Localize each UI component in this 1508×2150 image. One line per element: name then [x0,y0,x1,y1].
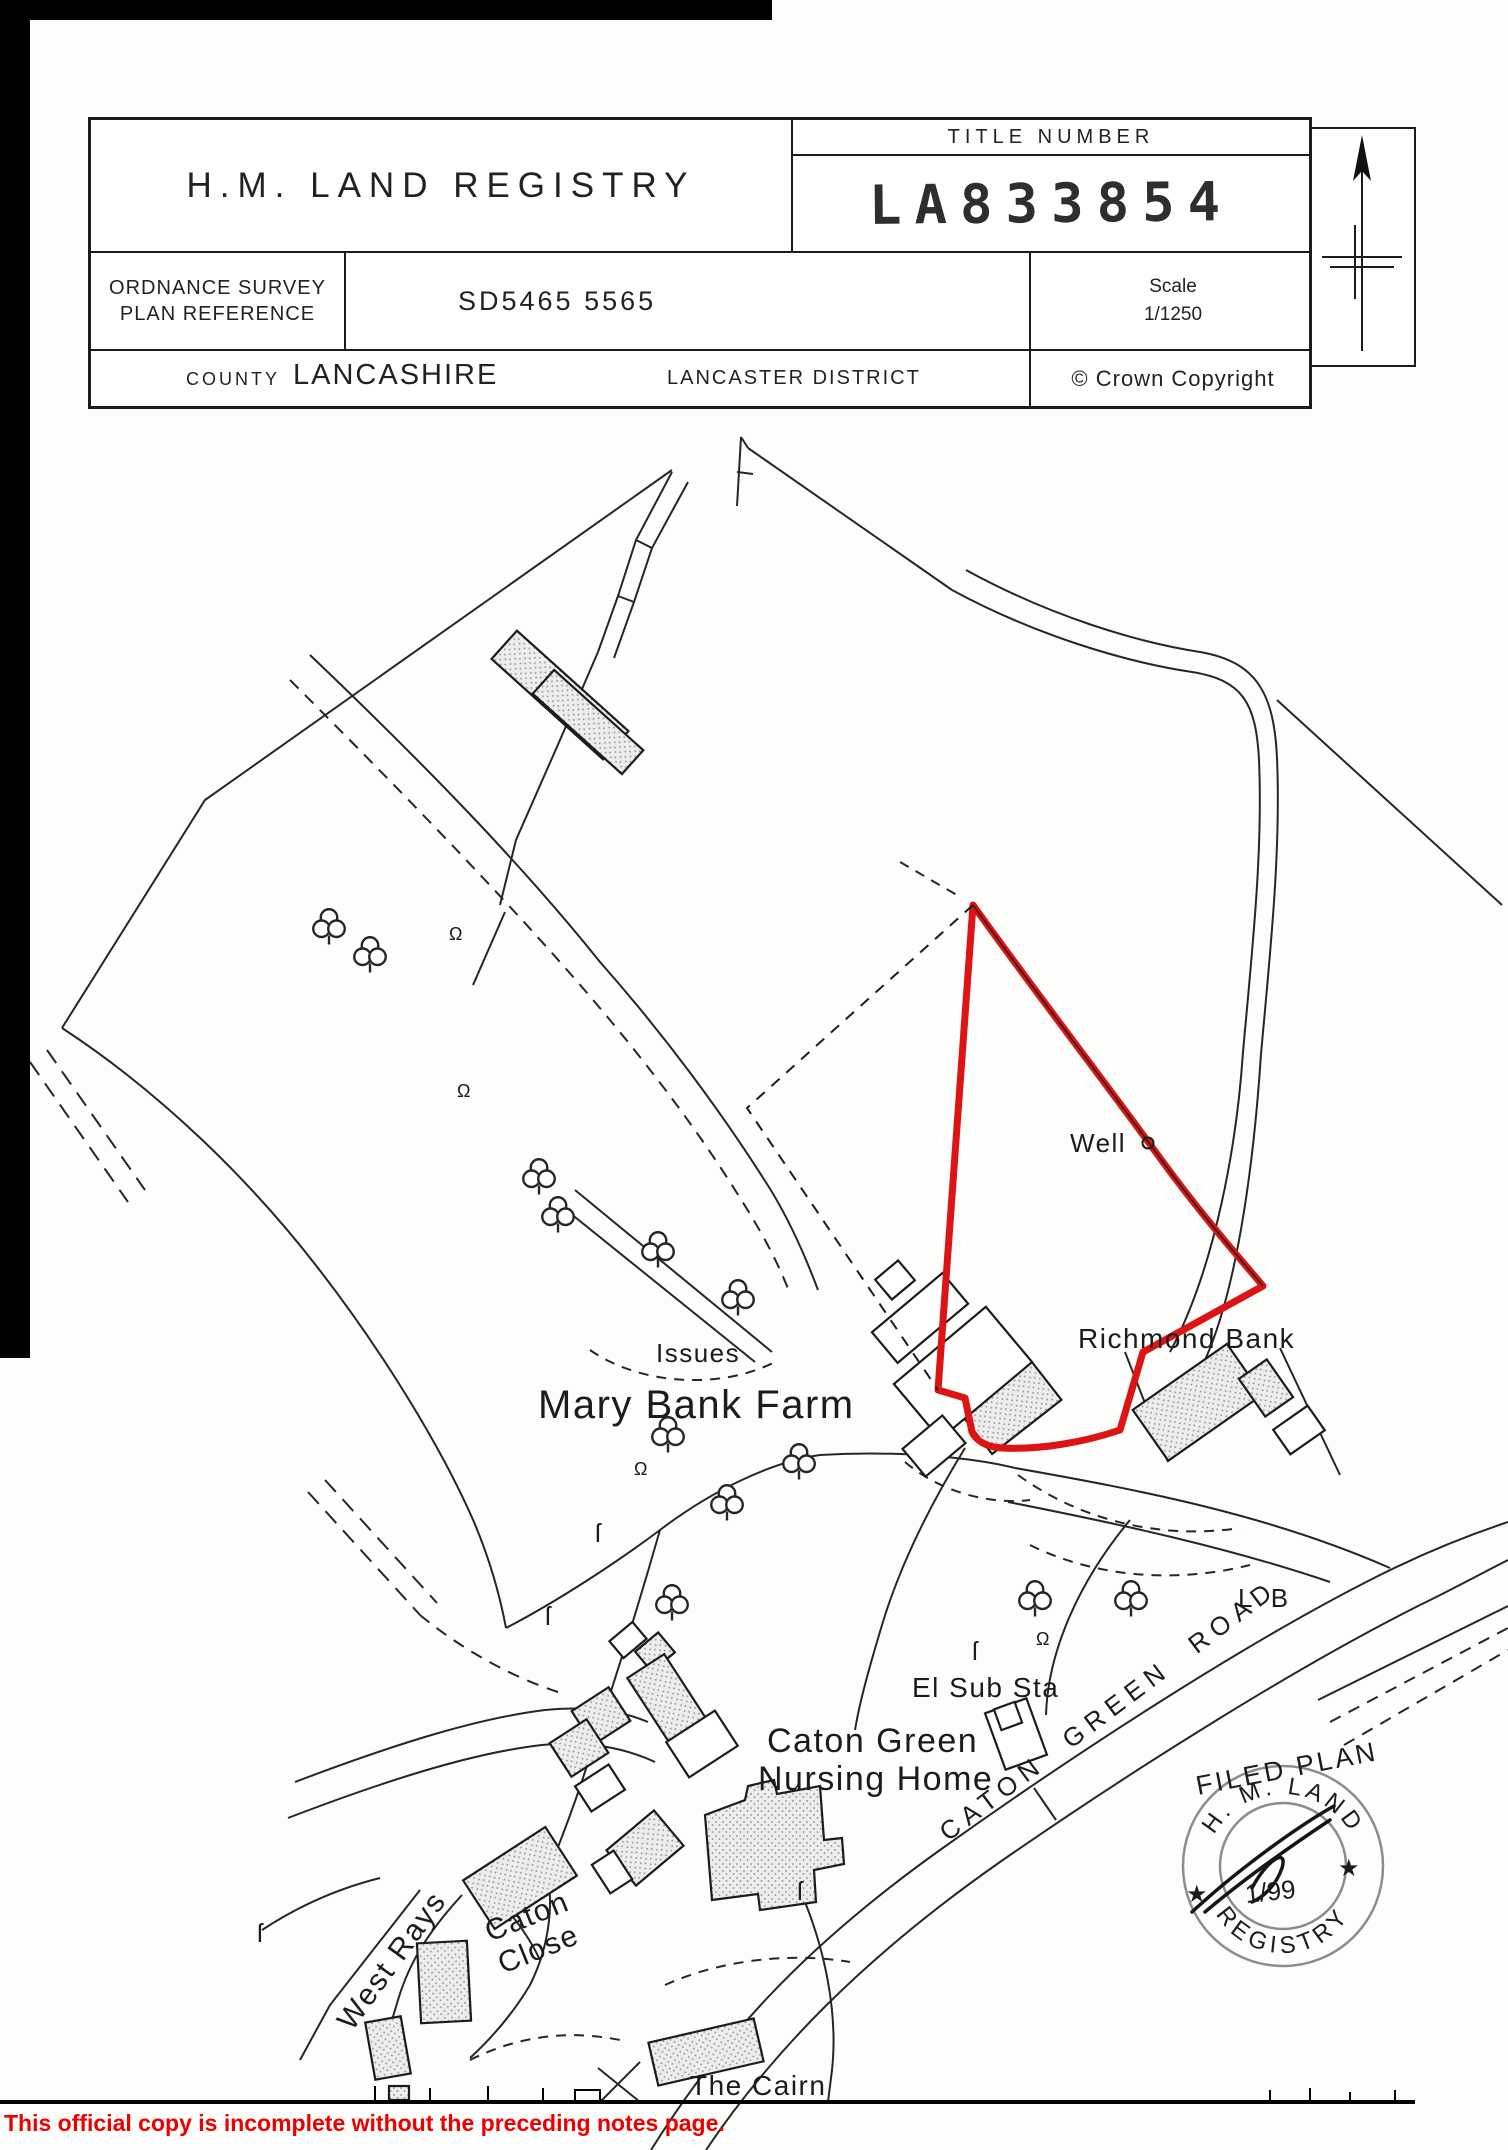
county-value: LANCASHIRE [293,359,498,392]
label-mary-bank-farm: Mary Bank Farm [538,1383,855,1427]
label-nursing-home: Nursing Home [758,1760,993,1798]
scan-artifact-left-bar [0,0,30,1358]
svg-text:ſ: ſ [595,1518,602,1548]
tree-symbols [313,909,1147,1620]
title-number-label: TITLE NUMBER [793,120,1309,156]
label-well: Well [1070,1128,1126,1158]
crown-copyright-text: © Crown Copyright [1071,366,1274,392]
header-table: H.M. LAND REGISTRY TITLE NUMBER LA833854… [88,117,1312,409]
title-number-stamp: LA833854 [869,170,1234,237]
svg-text:Ω: Ω [634,1459,647,1479]
svg-text:ſ: ſ [972,1636,979,1666]
title-number-label-text: TITLE NUMBER [948,126,1155,149]
os-plan-reference-label: ORDNANCE SURVEY PLAN REFERENCE [91,253,346,351]
label-the-cairn: The Cairn [690,2070,826,2101]
svg-text:Ω: Ω [449,924,462,944]
north-arrow-box [1310,127,1416,367]
crown-copyright: © Crown Copyright [1031,351,1315,407]
title-number-value: LA833854 [793,153,1310,252]
stamp-star-left-icon: ★ [1186,1881,1208,1908]
os-plan-reference-value: SD5465 5565 [346,253,1031,351]
county-label: COUNTY [186,369,280,390]
land-registry-title-plan: ΩΩ ΩΩ ſſ ſſ ſ Well Richmond Bank Issues … [0,0,1508,2150]
label-richmond-bank: Richmond Bank [1078,1323,1295,1354]
county-row: COUNTY LANCASHIRE LANCASTER DISTRICT [91,351,1031,407]
scale-cell: Scale 1/1250 [1031,253,1315,351]
north-arrow-icon [1312,129,1412,363]
footer-notice-text: This official copy is incomplete without… [4,2110,725,2136]
district-value: LANCASTER DISTRICT [667,367,921,390]
title-number-block: TITLE NUMBER LA833854 [793,120,1309,253]
agency-title-text: H.M. LAND REGISTRY [187,166,696,206]
os-reference-text: SD5465 5565 [458,286,656,317]
label-issues: Issues [656,1338,740,1368]
scan-artifact-top-bar [0,0,772,20]
filed-plan-stamp: FILED PLAN H. M. LAND REGISTRY ★ ★ 1/99 [1183,1736,1383,1966]
os-label-line2: PLAN REFERENCE [120,301,315,327]
label-el-sub-sta: El Sub Sta [912,1672,1059,1703]
footer-notice: This official copy is incomplete without… [4,2110,725,2137]
stamp-date: 1/99 [1243,1874,1296,1909]
svg-text:ſ: ſ [257,1918,264,1948]
svg-text:Ω: Ω [1036,1629,1049,1649]
scale-label: Scale [1149,273,1197,302]
svg-text:Ω: Ω [457,1081,470,1101]
scale-value: 1/1250 [1144,301,1202,330]
agency-title: H.M. LAND REGISTRY [91,120,793,253]
stamp-star-right-icon: ★ [1338,1855,1360,1882]
label-caton-green-road: CATON GREEN ROAD [934,1573,1283,1846]
label-lb: L B [1238,1583,1294,1613]
os-label-line1: ORDNANCE SURVEY [109,275,326,301]
label-caton-green: Caton Green [767,1722,978,1760]
svg-text:ſ: ſ [545,1601,552,1631]
map-labels: Well Richmond Bank Issues Mary Bank Farm… [331,1128,1295,2101]
